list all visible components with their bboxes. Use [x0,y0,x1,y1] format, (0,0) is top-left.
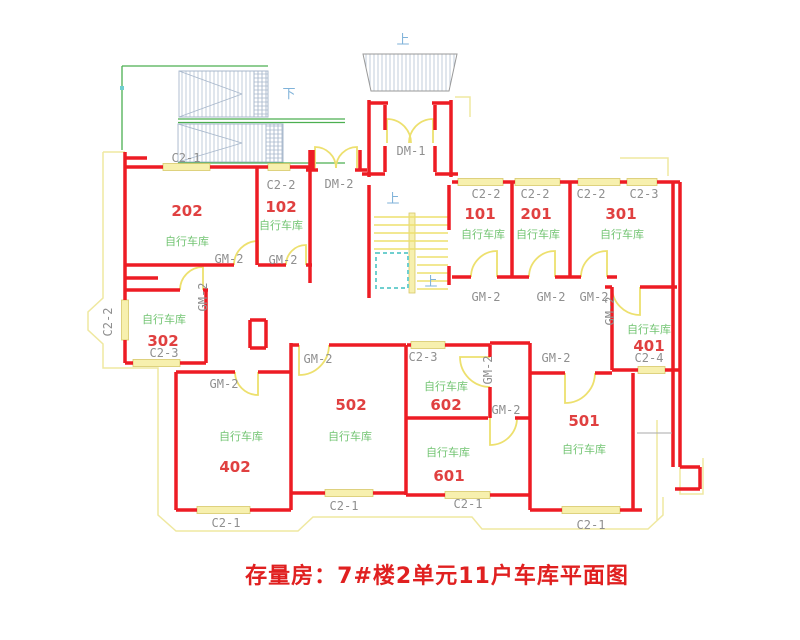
entrance-ramp-hatch [363,54,457,91]
label-up-entrance: 上 [396,33,409,48]
label-gm2-201: GM-2 [537,290,566,304]
window-c23-301 [627,179,657,186]
label-down-ramp: 下 [282,87,295,102]
label-c22-301: C2-2 [577,187,606,201]
room-number-301: 301 [605,205,636,223]
window-c22-301 [578,179,620,186]
door-gm2-501 [565,373,595,403]
room-use-402: 自行车库 [219,429,263,443]
label-c21-502: C2-1 [330,499,359,513]
drawing-title: 存量房：7#楼2单元11户车库平面图 [245,563,629,589]
room-use-301: 自行车库 [600,227,644,241]
elevator-shaft [376,253,408,288]
door-gm2-201 [529,251,555,277]
room-number-601: 601 [433,467,464,485]
room-number-501: 501 [568,412,599,430]
label-c23-301: C2-3 [630,187,659,201]
room-use-102: 自行车库 [259,218,303,232]
window-c23-602 [411,342,445,349]
window-c22-102 [268,164,290,171]
window-c21-502 [325,490,373,497]
label-dm2: DM-2 [325,177,354,191]
label-c21-601: C2-1 [454,497,483,511]
door-dm1-right-leaf [409,119,433,143]
label-gm2-202: GM-2 [215,252,244,266]
label-gm2-601: GM-2 [492,403,521,417]
room-number-201: 201 [520,205,551,223]
label-c22-102: C2-2 [267,178,296,192]
room-number-402: 402 [219,458,250,476]
room-use-502: 自行车库 [328,429,372,443]
left-ramp-area [120,66,345,163]
room-use-501: 自行车库 [562,442,606,456]
label-gm2-302: GM-2 [196,283,210,312]
window-openings [122,164,666,514]
label-gm2-502: GM-2 [304,352,333,366]
room-use-601: 自行车库 [426,445,470,459]
room-number-102: 102 [265,198,296,216]
label-c21-ramp: C2-1 [172,151,201,165]
door-dm2-right-leaf [336,147,357,168]
room-number-602: 602 [430,396,461,414]
window-c22-302-left [122,300,129,340]
room-number-101: 101 [464,205,495,223]
label-gm2-402: GM-2 [210,377,239,391]
label-dm1: DM-1 [397,144,426,158]
door-gm2-601 [490,418,517,445]
label-gm2-602: GM-2 [481,356,495,385]
label-c22-302: C2-2 [101,308,115,337]
upper-ramp-grille [254,71,268,117]
window-c22-101 [458,179,503,186]
cad-floor-plan-viewport: C2-1 C2-2 DM-2 DM-1 C2-2 C2-2 C2-2 C2-3 … [0,0,800,640]
floor-plan-drawing: C2-1 C2-2 DM-2 DM-1 C2-2 C2-2 C2-2 C2-3 … [0,0,800,640]
window-c24-401 [638,367,665,374]
window-c22-201 [515,179,560,186]
door-gm2-101 [471,251,497,277]
label-gm2-501: GM-2 [542,351,571,365]
label-up-stair-top: 上 [386,192,399,207]
room-number-502: 502 [335,396,366,414]
room-number-401: 401 [633,337,664,355]
room-use-401: 自行车库 [627,322,671,336]
room-use-101: 自行车库 [461,227,505,241]
window-c23-302 [133,360,180,367]
label-c22-201: C2-2 [521,187,550,201]
ramp-node-dot [120,86,124,90]
label-gm2-101: GM-2 [472,290,501,304]
label-c23-602: C2-3 [409,350,438,364]
room-number-302: 302 [147,332,178,350]
door-dm2-left-leaf [315,147,336,168]
room-use-302: 自行车库 [142,312,186,326]
window-c21-402 [197,507,250,514]
door-gm2-301 [581,251,607,277]
label-c21-501: C2-1 [577,518,606,532]
label-c21-402: C2-1 [212,516,241,530]
window-c21-501 [562,507,620,514]
room-use-602: 自行车库 [424,379,468,393]
lower-ramp-grille [266,124,283,162]
door-dm1-left-leaf [387,119,411,143]
label-gm2-401: GM-2 [603,297,617,326]
room-use-202: 自行车库 [165,234,209,248]
label-up-stair-bottom: 上 [424,275,437,290]
room-number-202: 202 [171,202,202,220]
label-c22-101: C2-2 [472,187,501,201]
room-use-201: 自行车库 [516,227,560,241]
label-gm2-102: GM-2 [269,253,298,267]
